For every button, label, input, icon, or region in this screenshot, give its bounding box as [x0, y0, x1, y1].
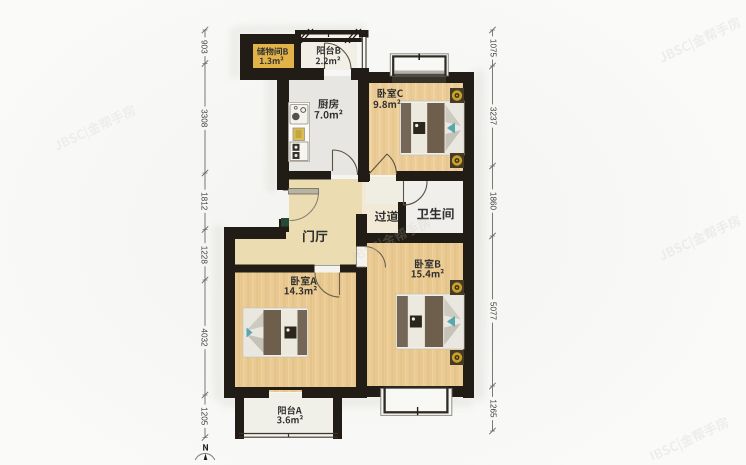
- svg-text:1075: 1075: [489, 39, 498, 58]
- svg-text:1265: 1265: [489, 399, 498, 418]
- svg-text:3237: 3237: [489, 107, 498, 126]
- svg-text:5077: 5077: [489, 302, 498, 321]
- svg-text:1860: 1860: [489, 192, 498, 211]
- svg-text:903: 903: [199, 40, 208, 54]
- svg-text:1228: 1228: [199, 246, 208, 265]
- svg-text:4032: 4032: [199, 328, 208, 347]
- svg-text:3308: 3308: [199, 109, 208, 128]
- svg-text:1812: 1812: [199, 192, 208, 211]
- svg-text:1205: 1205: [199, 407, 208, 426]
